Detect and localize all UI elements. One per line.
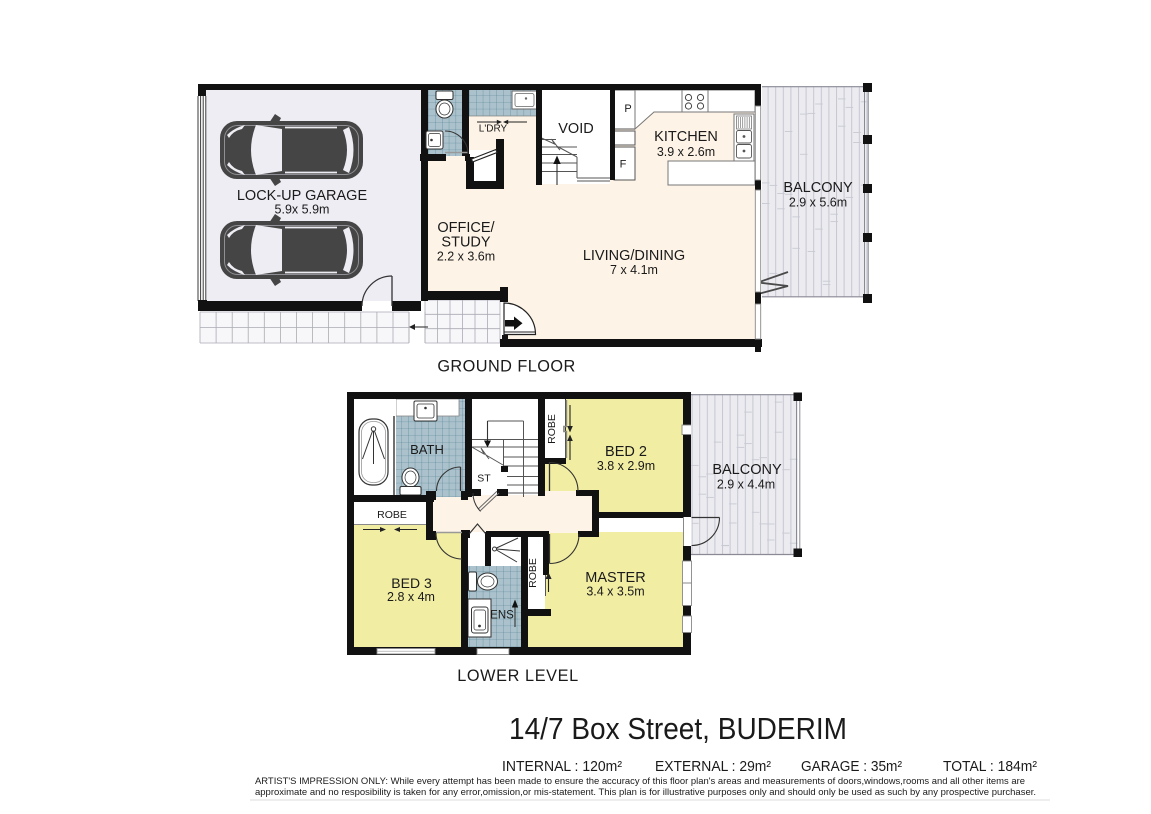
- svg-text:BALCONY: BALCONY: [783, 180, 853, 196]
- svg-text:KITCHEN: KITCHEN: [654, 129, 718, 145]
- svg-text:LIVING/DINING: LIVING/DINING: [583, 248, 685, 264]
- svg-text:2.2 x 3.6m: 2.2 x 3.6m: [437, 250, 495, 264]
- svg-text:5.9x 5.9m: 5.9x 5.9m: [275, 203, 330, 217]
- svg-text:L'DRY: L'DRY: [479, 124, 508, 135]
- svg-text:ENS: ENS: [490, 610, 514, 622]
- svg-text:ROBE: ROBE: [527, 558, 539, 588]
- svg-text:GROUND FLOOR: GROUND FLOOR: [437, 358, 575, 376]
- svg-text:7 x 4.1m: 7 x 4.1m: [610, 263, 658, 277]
- svg-text:2.8 x 4m: 2.8 x 4m: [387, 590, 435, 604]
- svg-text:ROBE: ROBE: [546, 414, 558, 444]
- svg-text:P: P: [624, 103, 631, 115]
- svg-text:BATH: BATH: [410, 442, 444, 457]
- svg-text:2.9 x 4.4m: 2.9 x 4.4m: [717, 478, 775, 492]
- svg-text:ST: ST: [477, 473, 491, 485]
- svg-text:BED 2: BED 2: [605, 444, 647, 460]
- svg-text:approximate and no resposibili: approximate and no resposibility is take…: [255, 787, 1036, 797]
- svg-text:F: F: [620, 159, 627, 171]
- svg-text:VOID: VOID: [558, 121, 593, 137]
- svg-text:BALCONY: BALCONY: [712, 462, 782, 478]
- svg-text:ARTIST'S IMPRESSION ONLY: Whil: ARTIST'S IMPRESSION ONLY: While every at…: [255, 776, 1025, 786]
- svg-text:INTERNAL : 120m²: INTERNAL : 120m²: [502, 759, 622, 775]
- svg-text:TOTAL : 184m²: TOTAL : 184m²: [943, 759, 1037, 775]
- svg-text:2.9 x 5.6m: 2.9 x 5.6m: [789, 196, 847, 210]
- svg-text:LOWER LEVEL: LOWER LEVEL: [457, 667, 579, 685]
- svg-text:3.9 x 2.6m: 3.9 x 2.6m: [657, 145, 715, 159]
- svg-text:3.4 x 3.5m: 3.4 x 3.5m: [586, 585, 644, 599]
- svg-text:ROBE: ROBE: [377, 509, 407, 521]
- svg-text:14/7 Box Street, BUDERIM: 14/7 Box Street, BUDERIM: [509, 711, 847, 746]
- svg-text:3.8 x 2.9m: 3.8 x 2.9m: [597, 459, 655, 473]
- svg-text:GARAGE : 35m²: GARAGE : 35m²: [801, 759, 902, 775]
- svg-text:STUDY: STUDY: [441, 235, 490, 251]
- svg-text:EXTERNAL : 29m²: EXTERNAL : 29m²: [655, 759, 771, 775]
- svg-text:BED 3: BED 3: [391, 575, 432, 591]
